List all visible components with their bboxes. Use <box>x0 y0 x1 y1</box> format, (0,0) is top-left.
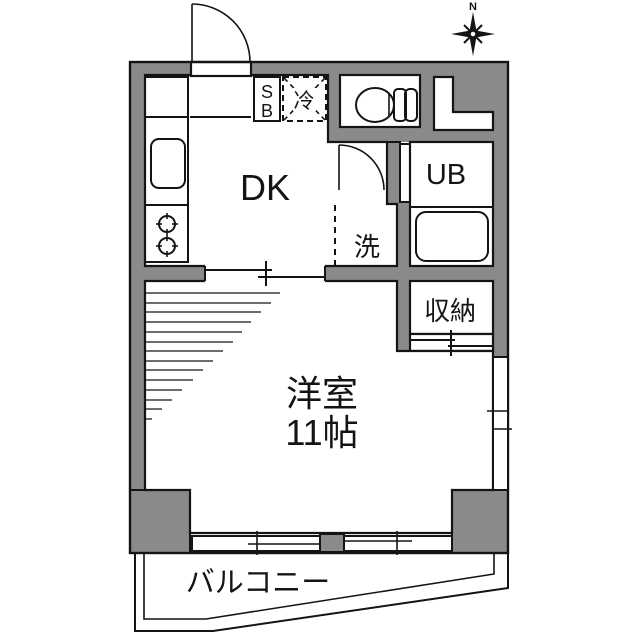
ub-wall-column <box>387 142 400 204</box>
room-toilet <box>340 75 420 127</box>
entrance-door <box>192 4 250 62</box>
entrance-opening <box>191 62 251 76</box>
window-mullion <box>320 534 344 552</box>
shoe-box-label: B <box>261 101 273 121</box>
main-room-name: 洋室 <box>286 373 358 414</box>
dk-room-sliding-door <box>205 261 325 286</box>
unit-bath-label: UB <box>426 159 466 191</box>
floor-plan: S B 冷 <box>0 0 640 639</box>
main-room-size: 11帖 <box>285 412 358 453</box>
washer-label: 洗 <box>354 232 380 262</box>
balcony-label: バルコニー <box>186 567 330 599</box>
dk-label: DK <box>240 167 290 208</box>
pillar-bottom-left <box>130 490 190 553</box>
pillar-bottom-right <box>452 490 508 553</box>
unit-bath-door <box>400 144 410 202</box>
balcony-window <box>192 531 452 555</box>
north-compass-icon <box>451 12 495 56</box>
shoe-box-label: S <box>261 82 273 102</box>
floor-plan-canvas: S B 冷 <box>0 0 640 639</box>
refrigerator-label: 冷 <box>294 90 315 113</box>
north-label: N <box>469 1 477 13</box>
closet-label: 収納 <box>424 296 476 326</box>
